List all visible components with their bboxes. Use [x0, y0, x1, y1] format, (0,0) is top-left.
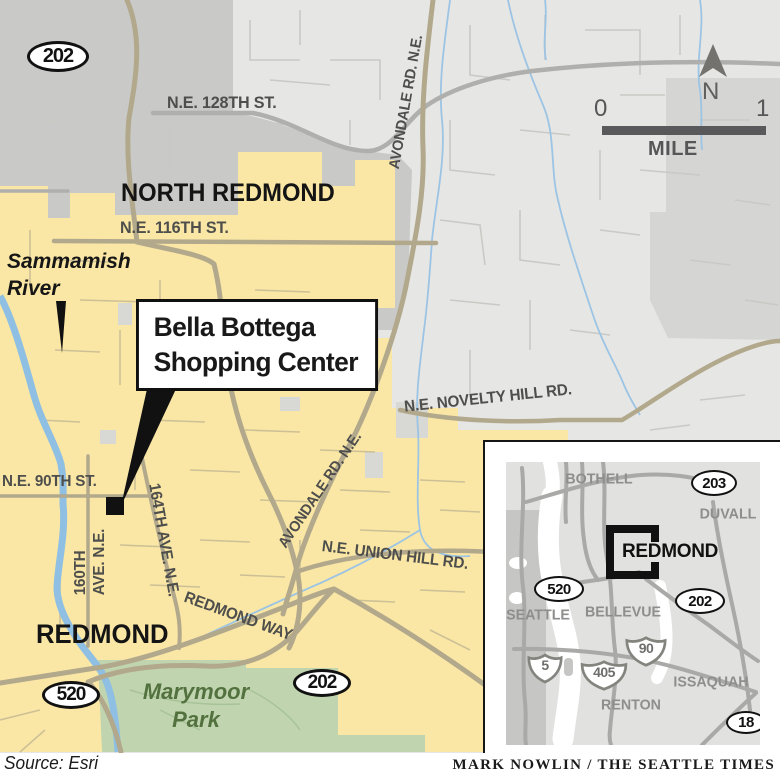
- inset-city-redmond: REDMOND: [622, 541, 718, 563]
- location-marker: [106, 497, 124, 515]
- shield-label: 203: [702, 475, 726, 492]
- route-shield-520: 520: [42, 681, 100, 709]
- shield-label: 520: [57, 684, 86, 706]
- author-credit: MARK NOWLIN / THE SEATTLE TIMES: [453, 757, 775, 774]
- callout-line1: Bella Bottega: [154, 310, 375, 345]
- shield-label: 90: [625, 640, 667, 656]
- shield-label: 202: [308, 672, 337, 694]
- water-label-line2: River: [7, 275, 131, 302]
- inset-shield-18: 18: [726, 711, 760, 734]
- inset-shield-203: 203: [691, 470, 737, 496]
- inset-city-issaquah: ISSAQUAH: [673, 674, 748, 691]
- street-label-ne-116th: N.E. 116TH ST.: [120, 218, 229, 238]
- shield-label: 202: [43, 45, 73, 68]
- street-label-ne-128th: N.E. 128TH ST.: [167, 93, 277, 113]
- shield-label: 18: [738, 714, 754, 731]
- park-label-line1: Marymoor: [143, 678, 249, 706]
- inset-map-canvas: BOTHELL DUVALL REDMOND SEATTLE BELLEVUE …: [506, 462, 760, 745]
- inset-city-duvall: DUVALL: [700, 506, 757, 523]
- callout-line2: Shopping Center: [154, 345, 375, 380]
- inset-shield-i90: 90: [625, 636, 667, 667]
- route-shield-202-south: 202: [293, 669, 351, 697]
- street-label-160th-line1: 160TH: [71, 529, 90, 595]
- shield-label: 202: [688, 593, 712, 610]
- inset-shield-i405: 405: [580, 660, 628, 691]
- inset-city-seattle: SEATTLE: [506, 607, 570, 624]
- scale-one-label: 1: [756, 95, 769, 123]
- shield-label: 520: [547, 581, 571, 598]
- locator-map-graphic: N.E. 128TH ST. NORTH REDMOND N.E. 116TH …: [0, 0, 780, 778]
- street-label-160th-ave: 160TH AVE. N.E.: [71, 529, 109, 595]
- north-label: N: [702, 78, 719, 106]
- region-label-redmond: REDMOND: [36, 619, 169, 650]
- inset-region-map: BOTHELL DUVALL REDMOND SEATTLE BELLEVUE …: [483, 440, 780, 753]
- inset-shield-520: 520: [534, 576, 584, 602]
- scale-zero-label: 0: [594, 95, 607, 123]
- street-label-160th-line2: AVE. N.E.: [90, 529, 109, 595]
- source-credit: Source: Esri: [4, 753, 98, 774]
- route-shield-202-northwest: 202: [27, 41, 89, 72]
- park-label-marymoor: Marymoor Park: [143, 678, 249, 733]
- water-label-line1: Sammamish: [7, 248, 131, 275]
- region-label-north-redmond: NORTH REDMOND: [121, 179, 335, 208]
- shield-label: 405: [580, 664, 628, 680]
- inset-city-renton: RENTON: [601, 697, 661, 714]
- inset-shield-i5: 5: [527, 653, 563, 684]
- inset-shield-202: 202: [675, 588, 725, 614]
- park-label-line2: Park: [143, 706, 249, 734]
- shield-label: 5: [527, 657, 563, 673]
- water-label-sammamish-river: Sammamish River: [7, 248, 131, 303]
- scale-bar: [602, 126, 766, 135]
- street-label-ne-90th: N.E. 90TH ST.: [2, 473, 97, 491]
- inset-city-bothell: BOTHELL: [565, 471, 632, 488]
- scale-unit-label: MILE: [648, 138, 698, 161]
- inset-city-bellevue: BELLEVUE: [585, 604, 661, 621]
- callout-bella-bottega: Bella Bottega Shopping Center: [136, 299, 378, 391]
